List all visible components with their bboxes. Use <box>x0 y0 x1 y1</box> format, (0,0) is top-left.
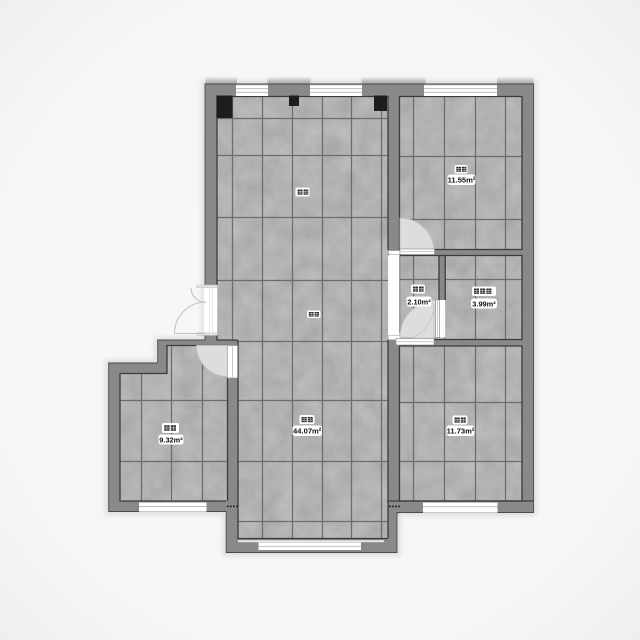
svg-text:11.55m²: 11.55m² <box>448 176 476 185</box>
svg-text:11.73m²: 11.73m² <box>447 427 475 436</box>
svg-text:3.99m²: 3.99m² <box>472 299 496 308</box>
svg-text:2.10m²: 2.10m² <box>407 297 431 306</box>
svg-text:44.07m²: 44.07m² <box>293 427 322 436</box>
svg-text:9.32m²: 9.32m² <box>159 435 183 444</box>
